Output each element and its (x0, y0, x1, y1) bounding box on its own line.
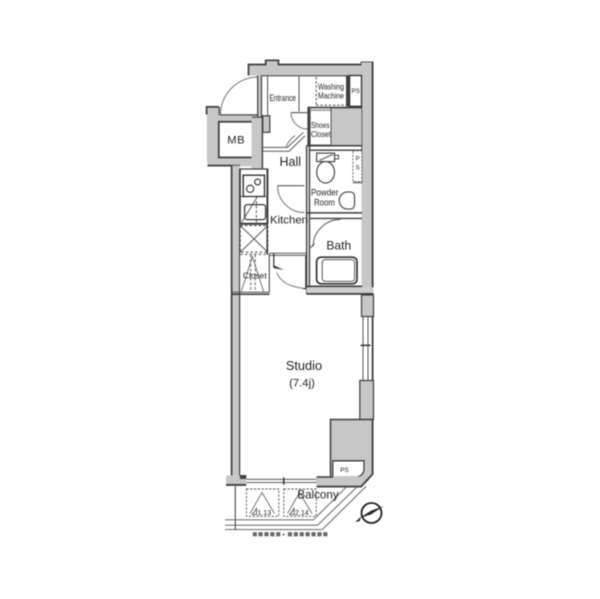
svg-text:Balcony: Balcony (297, 489, 338, 502)
svg-text:2.14: 2.14 (295, 510, 309, 517)
svg-text:P: P (356, 157, 360, 163)
svg-text:Kitchen: Kitchen (270, 215, 308, 227)
svg-text:Studio: Studio (286, 358, 322, 373)
svg-text:(7.4j): (7.4j) (289, 378, 315, 390)
svg-text:S: S (356, 166, 360, 172)
svg-text:PS: PS (351, 88, 359, 95)
svg-text:Bath: Bath (326, 239, 351, 253)
svg-text:Entrance: Entrance (270, 93, 297, 103)
svg-text:Hall: Hall (280, 154, 302, 169)
svg-text:Closet: Closet (311, 130, 331, 139)
svg-text:Machine: Machine (318, 92, 345, 101)
svg-text:MB: MB (227, 135, 245, 147)
svg-text:Closet: Closet (243, 271, 267, 281)
svg-text:1.13: 1.13 (258, 510, 272, 517)
svg-text:PS: PS (340, 467, 349, 474)
svg-text:Room: Room (314, 197, 335, 208)
svg-text:Washing: Washing (318, 83, 344, 92)
svg-text:Shoes: Shoes (311, 121, 330, 130)
